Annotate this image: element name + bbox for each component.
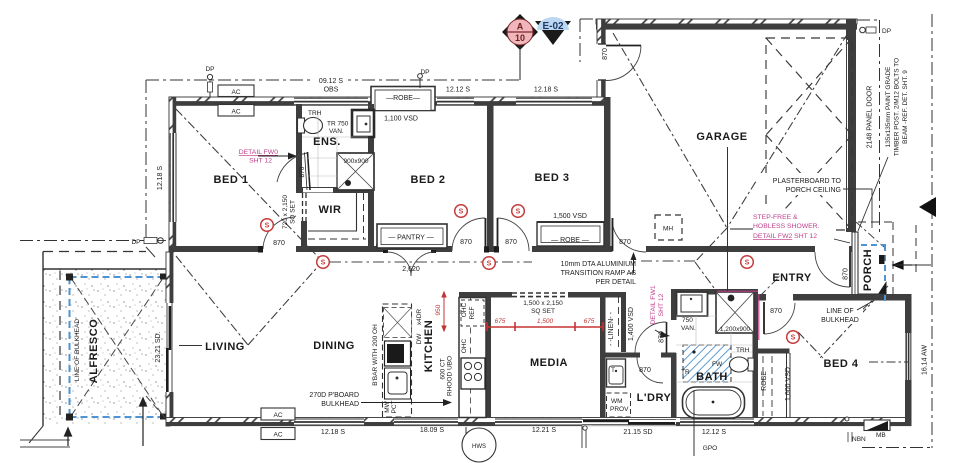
svg-text:720 x 2,150: 720 x 2,150 — [282, 195, 289, 229]
svg-text:ROBE: ROBE — [761, 371, 768, 391]
svg-text:MEDIA: MEDIA — [530, 357, 568, 369]
svg-text:270D P'BOARD: 270D P'BOARD — [309, 392, 359, 399]
svg-text:DETAIL FW2 SHT 12: DETAIL FW2 SHT 12 — [753, 233, 817, 240]
svg-text:BATH: BATH — [696, 371, 728, 383]
svg-text:MH: MH — [663, 226, 673, 233]
svg-text:PROV: PROV — [610, 406, 629, 413]
svg-text:SQ SET: SQ SET — [531, 308, 555, 315]
svg-text:AC: AC — [231, 109, 240, 116]
svg-text:AC: AC — [231, 89, 240, 96]
svg-text:870: 870 — [639, 367, 651, 374]
svg-text:E-02: E-02 — [542, 21, 564, 32]
svg-text:675: 675 — [495, 318, 506, 325]
svg-text:DP: DP — [420, 69, 429, 76]
svg-text:SHT 12: SHT 12 — [658, 293, 665, 316]
svg-text:AC: AC — [273, 432, 282, 439]
svg-text:09.12 S: 09.12 S — [319, 78, 343, 85]
svg-text:NBN: NBN — [852, 436, 866, 443]
svg-text:L'DRY: L'DRY — [637, 392, 672, 404]
svg-text:TRANSITION RAMP AS: TRANSITION RAMP AS — [561, 270, 637, 277]
svg-text:- -LINEN- -: - -LINEN- - — [608, 311, 615, 346]
svg-text:2148 PANEL DOOR: 2148 PANEL DOOR — [867, 86, 874, 149]
svg-text:16.14 AW: 16.14 AW — [922, 345, 929, 375]
svg-text:GPO: GPO — [703, 445, 717, 452]
svg-text:TRH: TRH — [736, 347, 750, 354]
svg-text:ENS.: ENS. — [313, 136, 341, 148]
svg-text:12.12 S: 12.12 S — [702, 429, 726, 436]
svg-text:S: S — [745, 260, 750, 267]
svg-text:WIR: WIR — [319, 204, 342, 216]
svg-text:BULKHEAD: BULKHEAD — [821, 317, 859, 324]
svg-text:HWS: HWS — [472, 444, 486, 450]
svg-text:DW: DW — [416, 333, 423, 345]
svg-text:PER DETAIL: PER DETAIL — [596, 279, 636, 286]
svg-text:OHC: OHC — [461, 338, 468, 353]
svg-text:VAN.: VAN. — [329, 128, 344, 135]
svg-text:1,400 VSD: 1,400 VSD — [628, 307, 635, 341]
svg-text:12.21 S: 12.21 S — [532, 427, 556, 434]
svg-text:REF: REF — [469, 306, 476, 319]
svg-text:870: 870 — [273, 240, 285, 247]
svg-text:LINE OF BULKHEAD: LINE OF BULKHEAD — [74, 319, 81, 381]
svg-text:PLASTERBOARD TO: PLASTERBOARD TO — [773, 178, 842, 185]
svg-text:— PANTRY —: — PANTRY — — [388, 235, 434, 242]
svg-text:LINE OF: LINE OF — [826, 308, 853, 315]
svg-text:10: 10 — [515, 33, 525, 43]
svg-text:BED 1: BED 1 — [214, 174, 249, 186]
svg-text:PORCH: PORCH — [862, 249, 874, 291]
svg-text:LIVING: LIVING — [205, 341, 245, 353]
svg-text:DETAIL FW1: DETAIL FW1 — [650, 285, 657, 324]
svg-text:S: S — [791, 335, 796, 342]
svg-text:MB: MB — [876, 432, 886, 439]
svg-text:18.09 S: 18.09 S — [420, 427, 444, 434]
svg-text:870: 870 — [843, 268, 850, 280]
svg-text:SQ SET: SQ SET — [290, 200, 297, 224]
svg-text:S: S — [459, 209, 464, 216]
svg-text:x4DR: x4DR — [416, 309, 423, 326]
svg-text:T: T — [611, 367, 615, 374]
svg-text:TR 750: TR 750 — [327, 121, 349, 128]
svg-text:675: 675 — [584, 318, 595, 325]
svg-text:TR: TR — [681, 369, 690, 376]
svg-text:DP: DP — [882, 28, 891, 35]
svg-text:870: 870 — [505, 239, 517, 246]
svg-text:870: 870 — [299, 166, 306, 177]
svg-text:SHT 12: SHT 12 — [249, 158, 272, 165]
svg-text:BED 3: BED 3 — [535, 172, 570, 184]
svg-text:GARAGE: GARAGE — [696, 131, 747, 143]
svg-text:S: S — [321, 260, 326, 267]
svg-text:S: S — [265, 223, 270, 230]
svg-text:1,500: 1,500 — [537, 318, 554, 325]
svg-text:—ROBE—: —ROBE— — [386, 95, 420, 102]
svg-text:DP: DP — [205, 66, 214, 73]
svg-text:BED 4: BED 4 — [824, 358, 859, 370]
svg-text:750: 750 — [682, 317, 693, 324]
svg-text:TRH: TRH — [308, 110, 322, 117]
svg-text:600 CT: 600 CT — [440, 358, 447, 379]
svg-text:S: S — [487, 261, 492, 268]
svg-text:1,500 VSD: 1,500 VSD — [553, 213, 587, 220]
svg-text:FW: FW — [712, 361, 723, 368]
svg-text:870: 870 — [460, 239, 472, 246]
svg-text:KITCHEN: KITCHEN — [423, 320, 435, 372]
svg-text:1,200x900: 1,200x900 — [720, 326, 751, 333]
svg-text:BED 2: BED 2 — [411, 174, 446, 186]
svg-text:OHC: OHC — [461, 302, 468, 317]
svg-text:DETAIL FW0: DETAIL FW0 — [239, 149, 278, 156]
svg-text:1,100 VSD: 1,100 VSD — [384, 116, 418, 123]
svg-text:DP: DP — [131, 239, 140, 246]
svg-text:12.12 S: 12.12 S — [446, 87, 470, 94]
svg-text:870: 870 — [770, 308, 782, 315]
svg-text:12.18 S: 12.18 S — [534, 87, 558, 94]
svg-text:21.15 SD: 21.15 SD — [623, 429, 652, 436]
svg-text:2,620: 2,620 — [402, 266, 420, 273]
svg-text:HOBLESS SHOWER.: HOBLESS SHOWER. — [753, 223, 820, 230]
svg-text:PORCH CEILING: PORCH CEILING — [786, 187, 841, 194]
svg-text:TIMBER POST. 2/M12 BOLTS TO: TIMBER POST. 2/M12 BOLTS TO — [894, 58, 901, 156]
svg-text:12.18 S: 12.18 S — [157, 166, 164, 190]
svg-text:VAN.: VAN. — [681, 325, 696, 332]
svg-text:AC: AC — [273, 412, 282, 419]
svg-text:ALFRESCO: ALFRESCO — [88, 319, 100, 384]
svg-text:870: 870 — [602, 48, 609, 60]
svg-text:10mm DTA ALUMINIUM: 10mm DTA ALUMINIUM — [561, 261, 636, 268]
svg-text:1,500 x 2,150: 1,500 x 2,150 — [523, 300, 563, 307]
svg-text:870: 870 — [659, 331, 666, 343]
svg-text:BULKHEAD: BULKHEAD — [321, 401, 359, 408]
svg-text:A: A — [517, 22, 524, 32]
svg-text:12.18 S: 12.18 S — [321, 429, 345, 436]
svg-text:OBS: OBS — [324, 87, 339, 94]
svg-text:950: 950 — [435, 304, 442, 315]
svg-text:RHOOD UBO: RHOOD UBO — [447, 356, 454, 396]
svg-text:ENTRY: ENTRY — [772, 272, 812, 284]
svg-text:— ROBE —: — ROBE — — [551, 237, 589, 244]
svg-text:23.21 SD.: 23.21 SD. — [155, 331, 162, 362]
svg-text:DINING: DINING — [313, 340, 355, 352]
svg-text:MW: MW — [384, 400, 391, 412]
svg-text:WM: WM — [611, 398, 623, 405]
svg-text:S: S — [516, 209, 521, 216]
svg-text:1,600 VSD: 1,600 VSD — [785, 367, 792, 401]
svg-text:STEP-FREE &: STEP-FREE & — [753, 214, 798, 221]
svg-text:135x135mm PAINT GRADE: 135x135mm PAINT GRADE — [885, 66, 892, 148]
svg-text:PCT: PCT — [391, 400, 398, 413]
svg-text:870: 870 — [619, 239, 631, 246]
svg-text:BEAM -REF. DET. SHT. 9: BEAM -REF. DET. SHT. 9 — [902, 70, 909, 144]
svg-text:900x900: 900x900 — [344, 158, 369, 165]
svg-text:B'BAR WITH 200 OH: B'BAR WITH 200 OH — [372, 324, 379, 386]
